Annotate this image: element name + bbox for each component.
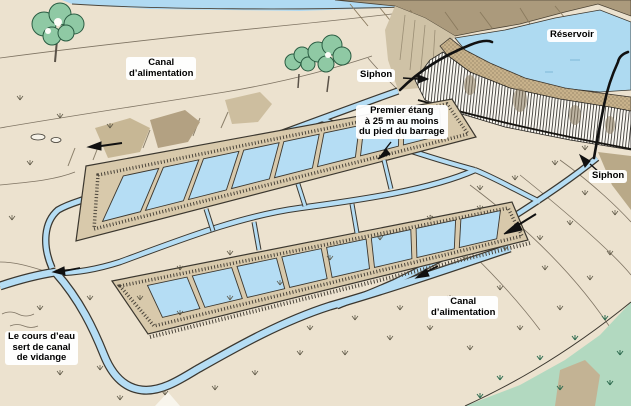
label-reservoir: Réservoir — [547, 29, 597, 42]
illustration-canvas: Canal d’alimentation Siphon Réservoir Pr… — [0, 0, 631, 406]
stone — [51, 138, 61, 143]
label-line: d’alimentation — [129, 69, 193, 80]
pond-site-drawing — [0, 0, 631, 406]
label-line: Canal — [431, 297, 495, 308]
label-line: Canal — [129, 58, 193, 69]
label-premier-etang: Premier étang à 25 m au moins du pied du… — [356, 105, 448, 139]
label-siphon-right: Siphon — [589, 170, 627, 183]
siphon-top-arrow — [403, 78, 418, 79]
label-siphon-top: Siphon — [357, 69, 395, 82]
label-line: Le cours d’eau — [8, 332, 75, 343]
label-line: de vidange — [8, 353, 75, 364]
label-cours-eau: Le cours d’eau sert de canal de vidange — [5, 331, 78, 365]
label-canal-alimentation-bottom: Canal d’alimentation — [428, 296, 498, 319]
label-line: d’alimentation — [431, 308, 495, 319]
label-line: Premier étang — [359, 106, 445, 117]
label-line: du pied du barrage — [359, 127, 445, 138]
label-canal-alimentation-top: Canal d’alimentation — [126, 57, 196, 80]
stone — [31, 134, 45, 140]
